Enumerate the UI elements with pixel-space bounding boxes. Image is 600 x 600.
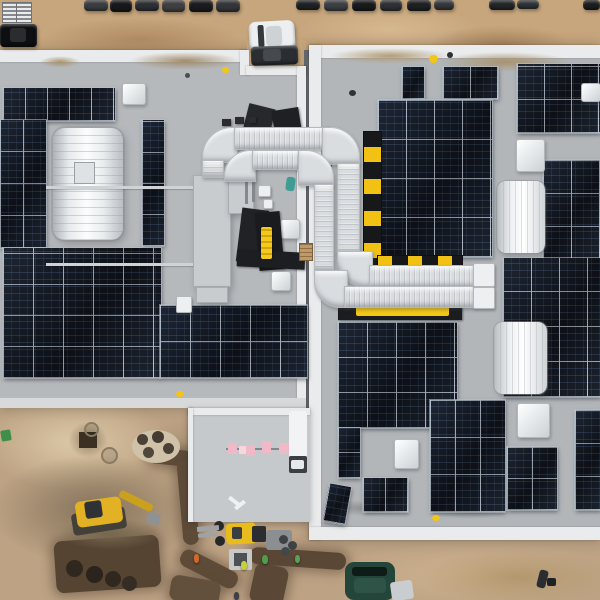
yellow-ladder — [261, 227, 272, 259]
solar-array — [378, 100, 492, 257]
parked-car — [84, 0, 108, 11]
solar-array — [443, 67, 498, 99]
duct-run — [202, 160, 224, 178]
penthouse-lower — [196, 287, 228, 303]
roof-unit-box — [263, 199, 273, 209]
pipe-stand — [222, 119, 231, 126]
worker — [194, 554, 199, 563]
duct-run — [337, 163, 360, 255]
barrel-roof-hatch — [74, 162, 95, 184]
skylight — [271, 271, 291, 291]
worker — [234, 592, 239, 600]
roof-vent-dot — [185, 73, 190, 78]
yellow-marker-dot — [432, 515, 440, 521]
pipe-stand — [249, 117, 256, 123]
skylight — [581, 83, 600, 102]
parked-car — [162, 0, 185, 12]
pink-marker-pale — [239, 446, 246, 454]
solar-array — [543, 160, 600, 260]
parked-car — [352, 0, 376, 11]
barrel-drum — [279, 535, 288, 544]
aerial-photo-solar-rooftop — [0, 0, 600, 600]
white-car-roof — [265, 26, 282, 47]
solar-array — [160, 305, 307, 378]
pipe-stand — [235, 117, 244, 124]
worker — [262, 555, 268, 564]
manhole-opening — [137, 434, 148, 445]
right-parapet-bottom — [309, 527, 600, 540]
left-parapet-bottom — [0, 398, 306, 408]
manhole-ring — [101, 447, 118, 464]
skylight — [516, 139, 545, 172]
round-roof-vent — [494, 322, 547, 394]
ahu-unit-box — [473, 287, 495, 309]
suv-window-band — [352, 567, 387, 576]
parked-car — [434, 0, 454, 10]
manhole-opening — [163, 443, 174, 454]
manhole-opening — [143, 447, 154, 458]
yellow-marker-dot — [222, 67, 229, 73]
pink-marker — [262, 441, 271, 453]
solar-array — [402, 67, 424, 99]
car-roof — [263, 49, 281, 62]
yellow-marker-dot — [176, 391, 184, 397]
solar-array — [363, 478, 408, 512]
telehandler-engine — [252, 526, 266, 542]
skylight — [517, 403, 550, 438]
parked-car — [216, 0, 240, 12]
parked-car — [489, 0, 515, 10]
parked-car — [135, 0, 159, 11]
yellow-marker-dot — [429, 55, 438, 63]
duct-run — [369, 265, 474, 288]
culvert-pipe — [105, 571, 121, 587]
white-car-window — [257, 25, 264, 47]
culvert-pipe — [66, 560, 83, 577]
roof-dirt-stain — [40, 56, 80, 68]
manhole-opening — [152, 431, 164, 443]
green-equipment — [0, 429, 12, 442]
parked-car — [110, 0, 132, 12]
car-roof — [10, 28, 26, 42]
solar-array — [3, 88, 115, 121]
worker — [241, 561, 247, 570]
manhole-ring — [84, 422, 99, 437]
barrel-vault-skylight — [53, 128, 123, 240]
solar-array — [3, 248, 161, 378]
roof-conduit — [46, 186, 193, 189]
roof-unit-box — [258, 185, 271, 197]
parked-car — [407, 0, 431, 11]
solar-array — [338, 428, 360, 478]
roof-unit-box — [176, 296, 192, 313]
solar-array — [0, 120, 46, 248]
solar-array — [507, 447, 557, 510]
telehandler-wheel — [215, 536, 225, 546]
solar-array — [575, 410, 600, 510]
moped-box — [547, 578, 556, 586]
roof-vent-dot — [349, 90, 356, 96]
parked-car — [189, 0, 213, 12]
roof-vent-dot — [447, 52, 453, 58]
wood-pallet — [299, 243, 313, 261]
parked-car — [324, 0, 348, 11]
skylight — [394, 439, 419, 469]
solar-array — [142, 120, 164, 246]
canopy-parapet-left — [188, 408, 193, 522]
excavator-cab — [84, 500, 103, 519]
parked-car — [583, 0, 600, 10]
storage-rack — [16, 2, 32, 23]
skylight — [122, 83, 146, 105]
box-truck-trailer — [289, 411, 307, 458]
pink-marker — [246, 445, 255, 456]
telehandler-cab — [232, 527, 242, 539]
parked-car — [517, 0, 539, 9]
roof-conduit — [46, 263, 193, 266]
box-truck-cab-roof — [291, 460, 304, 469]
duct-run — [314, 184, 334, 272]
trench — [248, 562, 290, 600]
worker — [295, 555, 300, 563]
barrel-drum — [281, 547, 290, 556]
skylight — [280, 219, 300, 239]
culvert-pipe — [122, 576, 137, 591]
sand-stain — [420, 550, 600, 600]
culvert-pipe — [86, 566, 103, 583]
duct-run — [344, 286, 474, 308]
pink-marker — [279, 443, 289, 454]
storage-rack — [2, 2, 17, 23]
solar-array — [430, 400, 505, 512]
suv-roof — [354, 578, 386, 593]
pink-marker — [228, 443, 237, 454]
parked-car — [380, 0, 402, 11]
light-trailer — [390, 580, 414, 600]
ahu-unit-box — [473, 263, 495, 287]
penthouse-main — [193, 175, 231, 287]
parked-car — [296, 0, 320, 10]
round-roof-vent — [497, 181, 545, 253]
